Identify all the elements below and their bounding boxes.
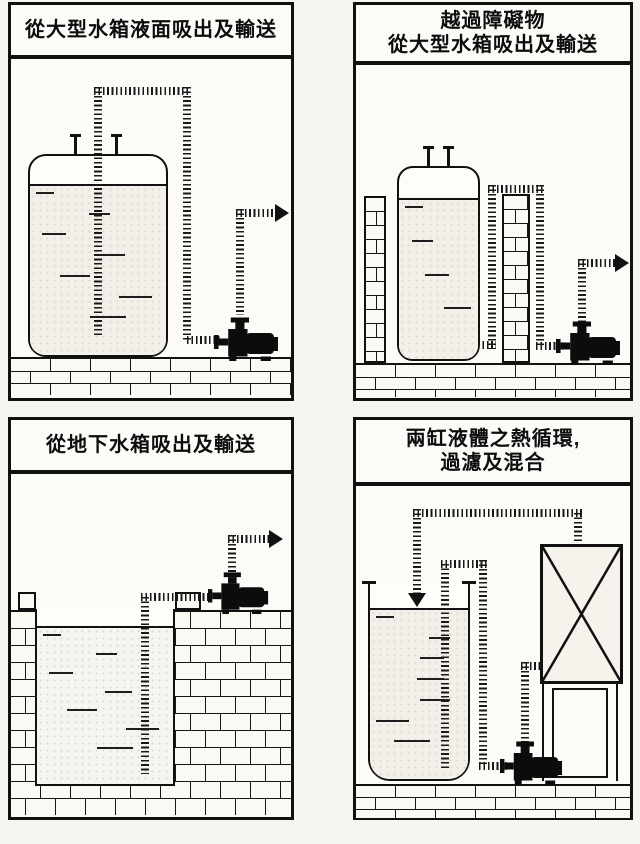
filter-unit <box>540 544 623 684</box>
flow-arrow-icon <box>615 254 629 272</box>
discharge-pipe-riser <box>521 662 529 743</box>
brick-ground <box>356 784 630 818</box>
discharge-pipe-out <box>228 535 270 543</box>
discharge-pipe-riser <box>578 259 586 323</box>
panel-underground-tank: 從地下水箱吸出及輸送 <box>8 417 294 820</box>
panel-title: 從地下水箱吸出及輸送 <box>11 420 291 470</box>
suction-pipe-down <box>479 560 487 766</box>
pump-icon <box>208 570 270 614</box>
brick-ground <box>356 363 630 397</box>
panel-suction-from-surface: 從大型水箱液面吸出及輸送 <box>8 2 294 401</box>
panel-over-obstacle: 越過障礙物 從大型水箱吸出及輸送 <box>353 2 633 401</box>
suction-pipe-to-pump <box>141 593 211 601</box>
flow-arrow-icon <box>275 204 289 222</box>
diagram-canvas: 從大型水箱液面吸出及輸送 越過障礙物 從大型水箱吸出及輸送 <box>0 0 640 844</box>
return-arrow-icon <box>408 593 426 607</box>
panel-title: 兩缸液體之熱循環, 過濾及混合 <box>356 420 630 482</box>
suction-pipe-down <box>536 185 544 346</box>
tank-liquid <box>370 608 468 779</box>
return-pipe-from-filter <box>574 513 582 544</box>
panel-title: 越過障礙物 從大型水箱吸出及輸送 <box>356 5 630 61</box>
large-tank <box>397 166 480 361</box>
tank-liquid <box>399 198 478 359</box>
tank-stub-right <box>447 146 450 167</box>
suction-pipe-drop <box>141 597 149 774</box>
discharge-pipe-out <box>236 209 276 217</box>
discharge-pipe-to-filter <box>521 662 542 670</box>
discharge-pipe-riser <box>236 209 244 315</box>
obstacle-wall <box>502 194 530 363</box>
scene <box>356 65 630 397</box>
scene <box>11 474 291 815</box>
scene <box>11 59 291 397</box>
scene <box>356 486 630 818</box>
suction-pipe-top <box>94 87 191 95</box>
brick-cap-left <box>18 592 36 610</box>
pit-water <box>37 626 173 784</box>
open-tank <box>368 583 470 781</box>
tank-stub-left <box>74 134 77 155</box>
brick-ground <box>11 357 291 395</box>
discharge-pipe-out <box>578 259 616 267</box>
brick-wall-left <box>364 196 386 363</box>
panel-circulation-filter: 兩缸液體之熱循環, 過濾及混合 <box>353 417 633 820</box>
tank-stub-right <box>115 134 118 155</box>
suction-pipe-riser <box>183 87 191 342</box>
flow-arrow-icon <box>269 530 283 548</box>
pump-icon <box>500 739 564 785</box>
panel-title: 從大型水箱液面吸出及輸送 <box>11 5 291 55</box>
tank-stub-left <box>427 146 430 167</box>
suction-pipe-drop <box>94 87 102 336</box>
suction-pipe-drop <box>441 564 449 769</box>
return-pipe-top <box>413 509 582 517</box>
tank-rim-right <box>462 581 476 584</box>
pump-icon <box>214 315 280 361</box>
suction-pipe-riser <box>488 185 496 349</box>
tank-rim-left <box>362 581 376 584</box>
underground-pit <box>35 609 175 786</box>
return-pipe-drop <box>413 509 421 594</box>
pump-icon <box>556 319 622 365</box>
